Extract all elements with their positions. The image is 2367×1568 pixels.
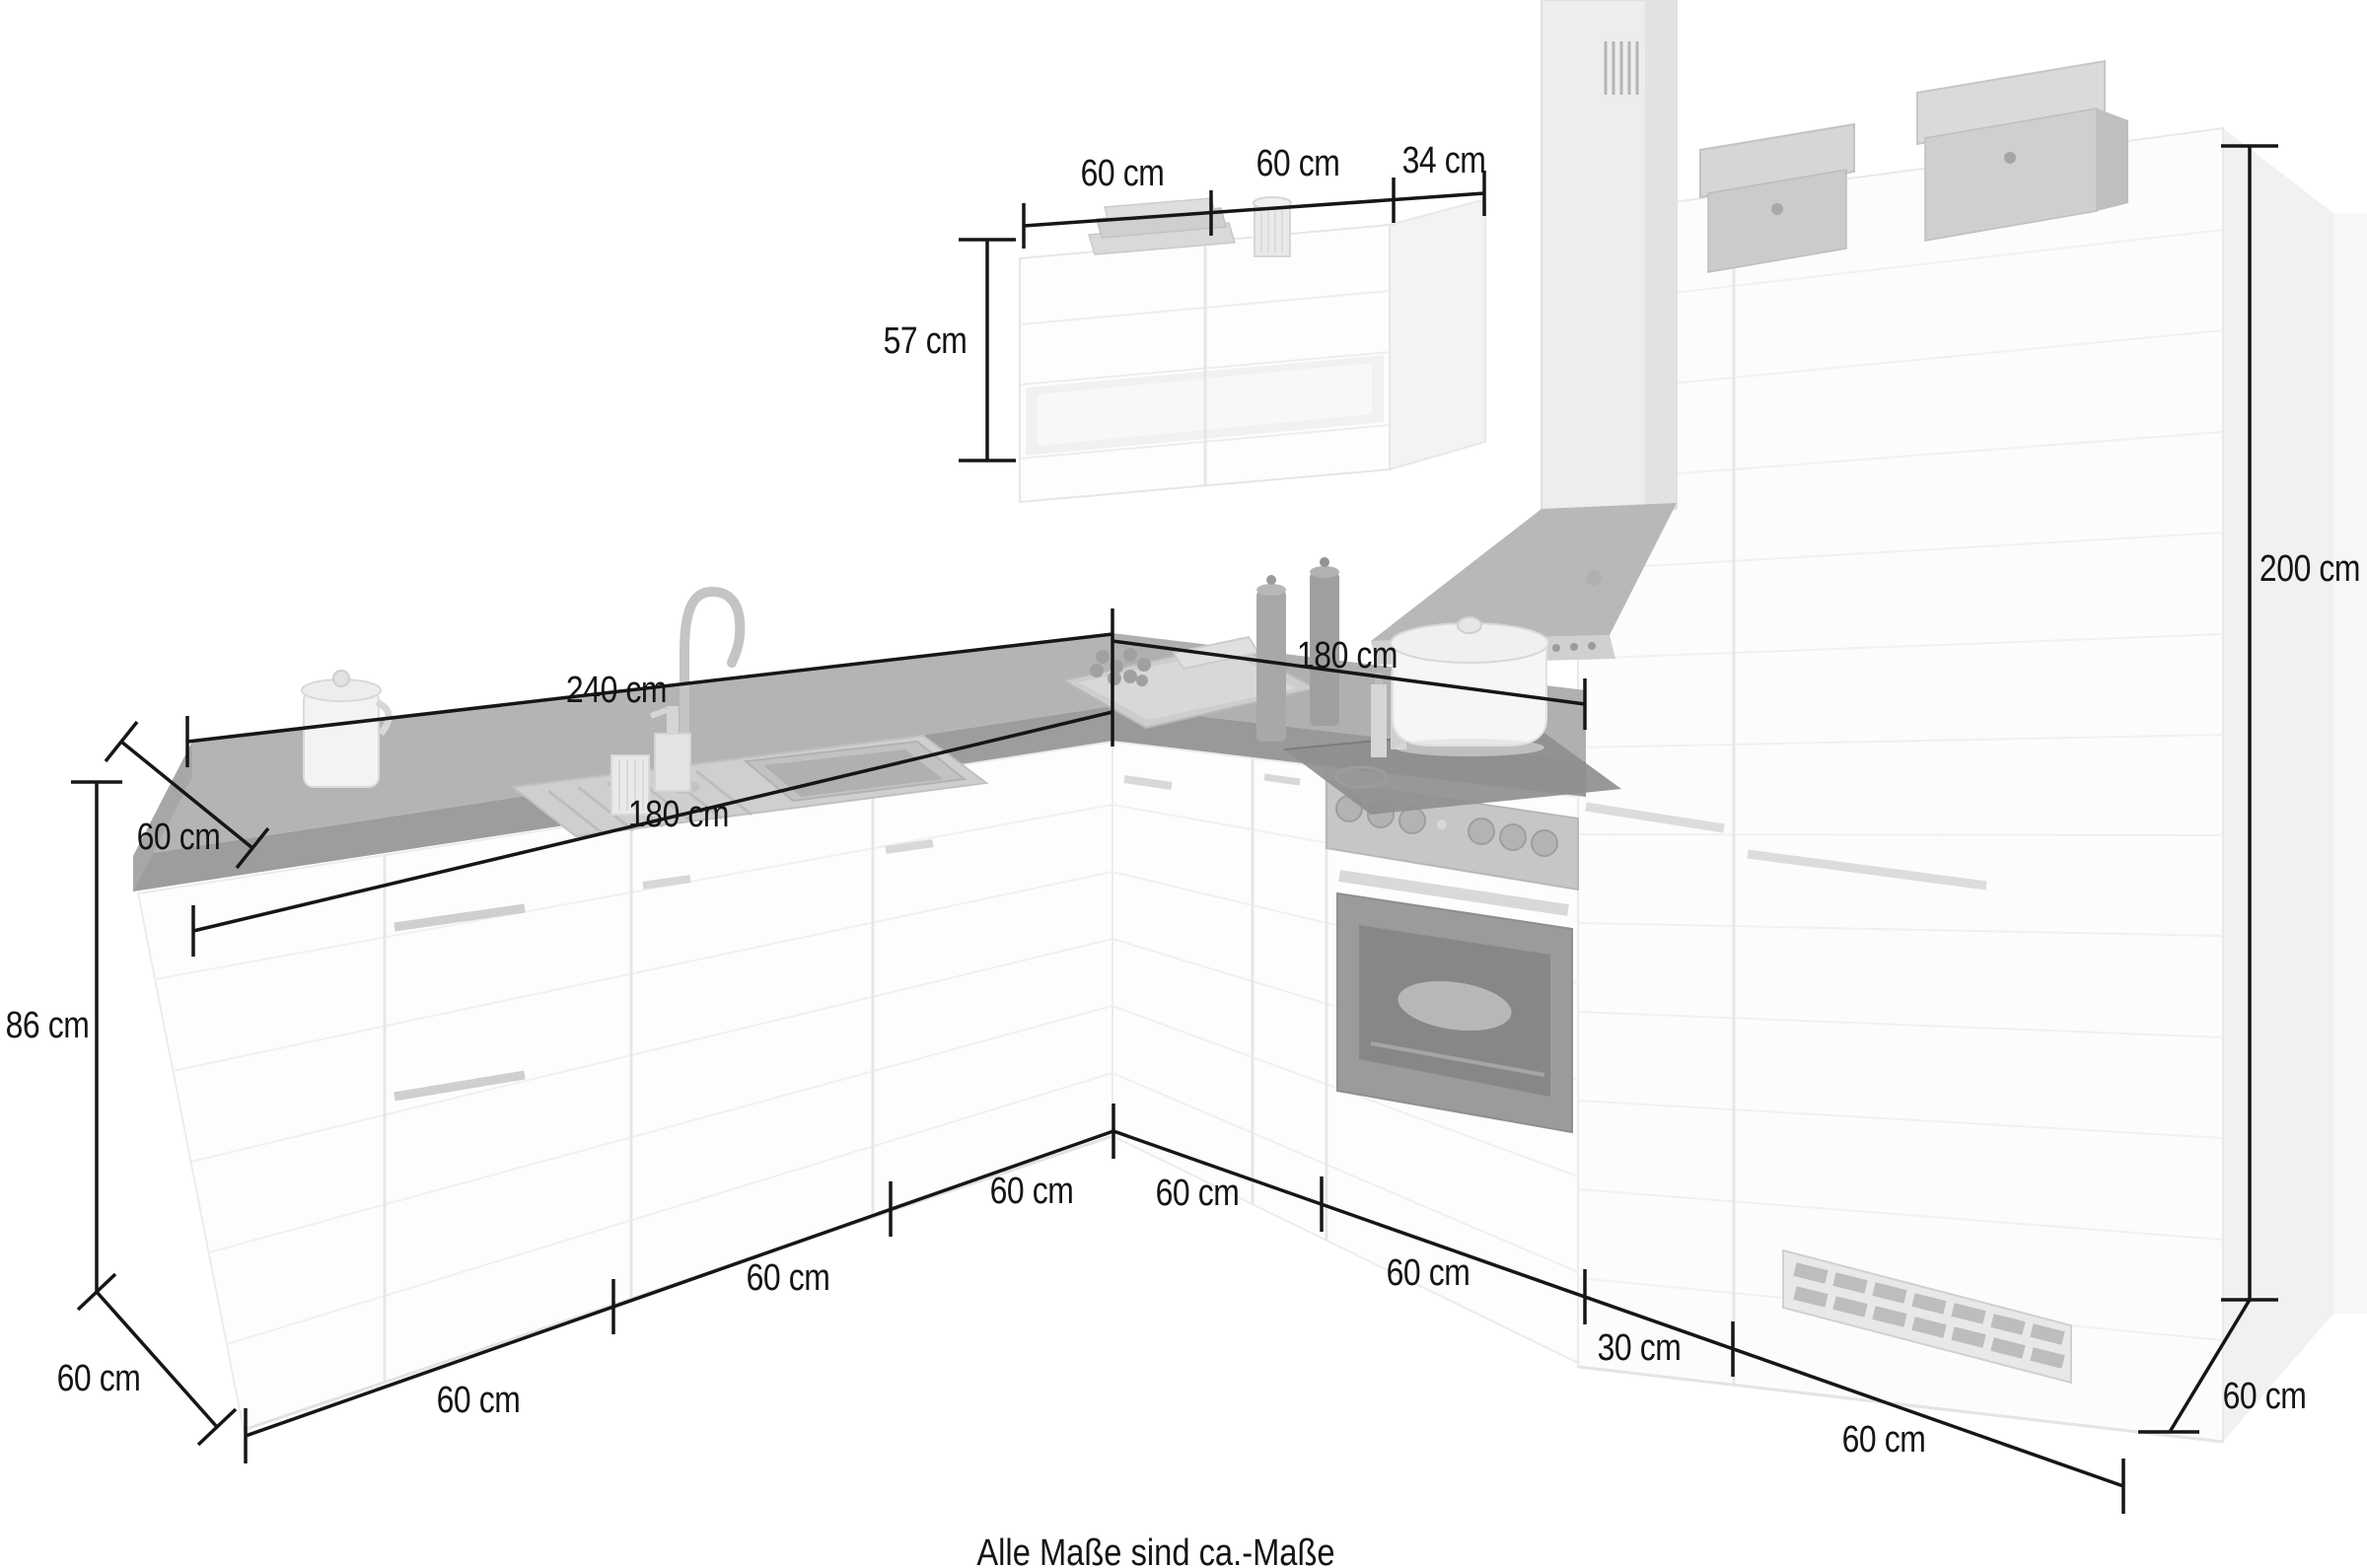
canister: [302, 671, 389, 787]
dim-worktop-front-length: 180 cm: [628, 796, 729, 833]
dim-front-right-a: 60 cm: [1156, 1175, 1240, 1212]
dim-worktop-back-length: 240 cm: [566, 672, 667, 709]
dim-tall-unit-depth: 60 cm: [2223, 1378, 2307, 1415]
dim-top-wall-unit-1: 60 cm: [1081, 155, 1165, 192]
oven: [1327, 781, 1578, 1132]
dim-wall-unit-height: 57 cm: [884, 322, 968, 360]
dim-front-left-a: 60 cm: [437, 1382, 521, 1419]
wall-cabinets: [1020, 199, 1485, 502]
wall-shadow: [2333, 213, 2367, 1314]
dim-top-wall-depth: 34 cm: [1402, 142, 1486, 179]
dim-front-right-d: 60 cm: [1842, 1421, 1926, 1459]
tall-cabinets: [1578, 128, 2333, 1442]
dim-worktop-depth: 60 cm: [137, 819, 221, 856]
product-dimension-diagram: 60 cm 60 cm 34 cm 57 cm 240 cm 180 cm 18…: [0, 0, 2367, 1568]
footer-note: Alle Maße sind ca.-Maße: [976, 1534, 1334, 1568]
dim-tall-unit-height: 200 cm: [2259, 550, 2360, 588]
dim-base-unit-height: 86 cm: [6, 1007, 90, 1044]
dim-front-left-b: 60 cm: [747, 1259, 830, 1297]
soap-dispenser: [655, 734, 690, 791]
kitchen-illustration: [0, 0, 2367, 1568]
dim-right-run-length: 180 cm: [1297, 637, 1398, 675]
dim-front-right-c: 30 cm: [1598, 1329, 1682, 1367]
dim-front-right-b: 60 cm: [1387, 1254, 1470, 1292]
dim-top-wall-unit-2: 60 cm: [1256, 145, 1340, 182]
dim-left-plinth-depth: 60 cm: [57, 1360, 141, 1397]
dim-front-left-c: 60 cm: [990, 1173, 1074, 1210]
